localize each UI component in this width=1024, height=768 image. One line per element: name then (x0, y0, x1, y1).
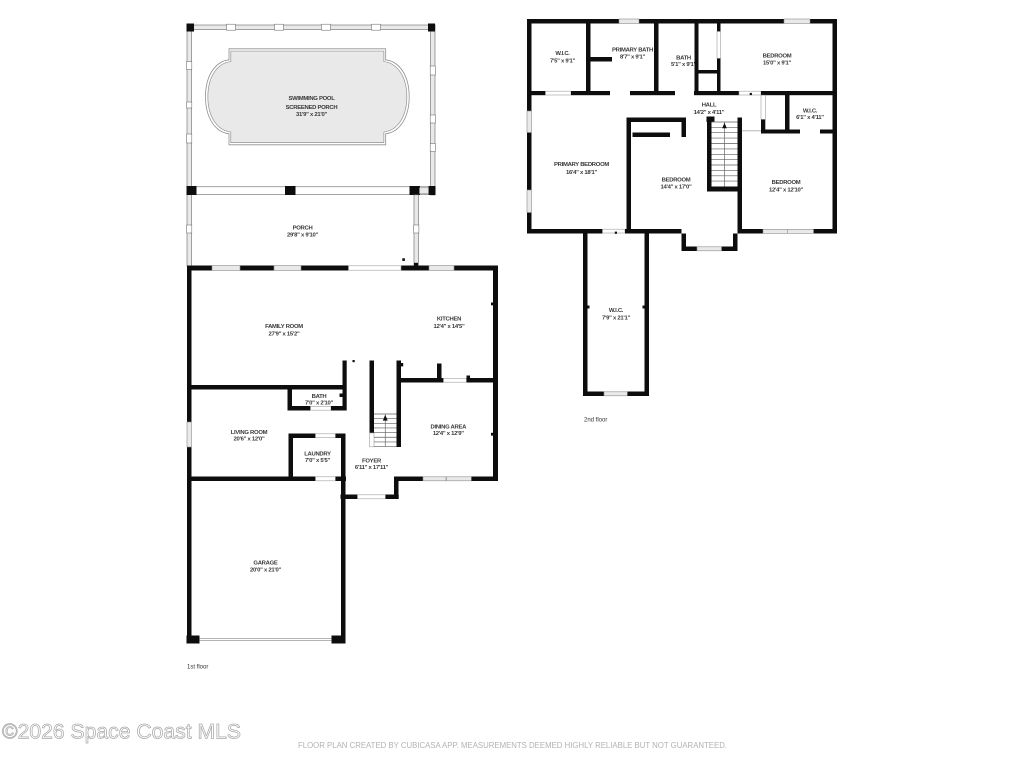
svg-text:HALL: HALL (702, 103, 717, 109)
svg-text:©2026 Space Coast MLS: ©2026 Space Coast MLS (2, 721, 241, 744)
svg-text:2nd floor: 2nd floor (584, 418, 607, 424)
svg-text:31'9" x 21'0": 31'9" x 21'0" (296, 112, 327, 118)
svg-text:7'0" x 5'5": 7'0" x 5'5" (305, 458, 330, 464)
svg-text:15'0" x 9'1": 15'0" x 9'1" (763, 61, 791, 67)
svg-text:BATH: BATH (312, 394, 327, 400)
svg-text:7'0" x 2'10": 7'0" x 2'10" (305, 401, 333, 407)
svg-text:27'9" x 15'2": 27'9" x 15'2" (269, 332, 300, 338)
svg-text:BEDROOM: BEDROOM (772, 180, 801, 186)
svg-text:W.I.C.: W.I.C. (803, 109, 818, 115)
svg-text:16'4" x 18'1": 16'4" x 18'1" (566, 170, 597, 176)
svg-text:BATH: BATH (676, 56, 691, 62)
svg-text:LIVING ROOM: LIVING ROOM (231, 430, 268, 436)
svg-text:W.I.C.: W.I.C. (609, 308, 624, 314)
svg-text:DINING AREA: DINING AREA (430, 425, 467, 431)
svg-text:7'5" x 9'1": 7'5" x 9'1" (550, 59, 575, 65)
svg-text:SCREENED PORCH: SCREENED PORCH (286, 105, 338, 111)
svg-text:FAMILY ROOM: FAMILY ROOM (265, 324, 303, 330)
svg-text:PRIMARY BATH: PRIMARY BATH (612, 48, 653, 54)
svg-text:20'0" x 21'0": 20'0" x 21'0" (250, 568, 281, 574)
svg-text:12'4" x 12'10": 12'4" x 12'10" (769, 188, 803, 194)
svg-text:PORCH: PORCH (293, 226, 313, 232)
svg-text:20'6" x 12'0": 20'6" x 12'0" (234, 437, 265, 443)
svg-text:LAUNDRY: LAUNDRY (304, 452, 331, 458)
svg-text:BEDROOM: BEDROOM (662, 178, 691, 184)
svg-text:6'1" x 4'11": 6'1" x 4'11" (796, 115, 824, 121)
svg-text:5'1" x 9'1": 5'1" x 9'1" (671, 62, 696, 68)
svg-text:KITCHEN: KITCHEN (437, 317, 461, 323)
svg-text:14'4" x 17'0": 14'4" x 17'0" (661, 185, 692, 191)
svg-text:BEDROOM: BEDROOM (763, 54, 792, 60)
svg-text:12'4" x 14'5": 12'4" x 14'5" (434, 324, 465, 330)
svg-text:FLOOR PLAN CREATED BY CUBICASA: FLOOR PLAN CREATED BY CUBICASA APP. MEAS… (298, 741, 727, 750)
svg-text:12'4" x 12'9": 12'4" x 12'9" (433, 431, 464, 437)
svg-text:8'7" x 9'1": 8'7" x 9'1" (620, 55, 645, 61)
svg-text:SWIMMING POOL: SWIMMING POOL (288, 96, 335, 102)
svg-text:FOYER: FOYER (362, 459, 382, 465)
svg-text:6'11" x 17'11": 6'11" x 17'11" (355, 465, 389, 471)
svg-text:14'2" x 4'11": 14'2" x 4'11" (694, 110, 725, 116)
svg-text:1st floor: 1st floor (187, 665, 208, 671)
svg-text:W.I.C.: W.I.C. (555, 51, 570, 57)
svg-text:29'8" x 9'10": 29'8" x 9'10" (287, 233, 318, 239)
svg-text:PRIMARY BEDROOM: PRIMARY BEDROOM (554, 162, 609, 168)
svg-text:7'9" x 21'1": 7'9" x 21'1" (602, 316, 630, 322)
svg-text:GARAGE: GARAGE (253, 561, 278, 567)
